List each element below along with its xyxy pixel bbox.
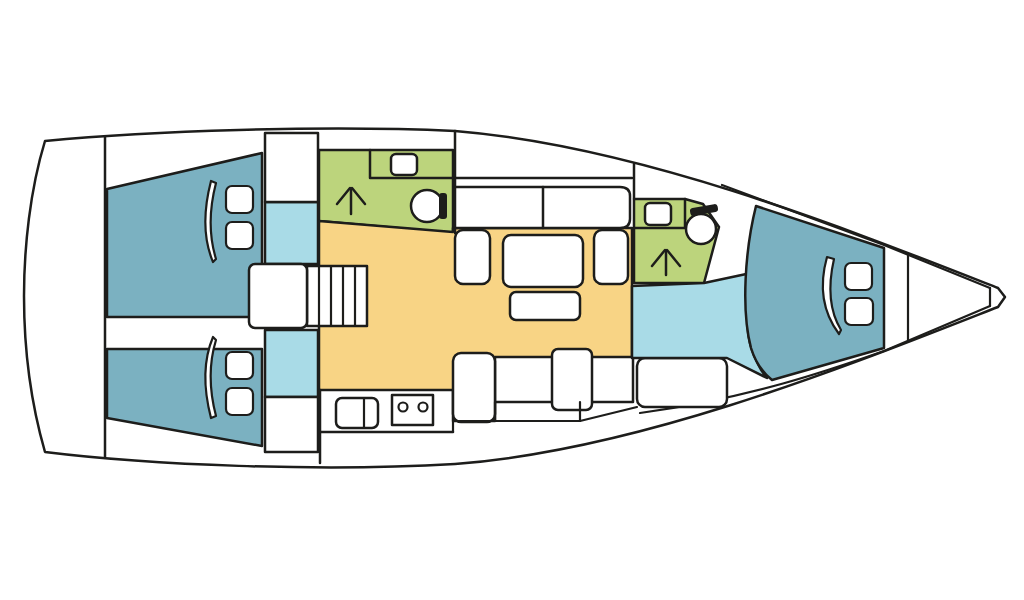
companionway-landing [249, 264, 307, 328]
floor-plan-canvas [0, 0, 1024, 600]
aft-head-toilet [411, 190, 443, 222]
pillow [226, 352, 253, 379]
forward-head-sink [645, 203, 671, 225]
salon-table [503, 235, 583, 287]
aft-head [319, 150, 453, 233]
pillow [226, 388, 253, 415]
companionway [249, 264, 367, 328]
companionway-steps [307, 266, 367, 326]
locker-aft-starboard [265, 397, 318, 452]
pillow [226, 186, 253, 213]
corridor-starboard [265, 330, 318, 397]
pillow [226, 222, 253, 249]
aft-head-sink [391, 154, 417, 175]
side-seat-left [455, 230, 490, 284]
aft-head-toilet-lid [439, 193, 447, 219]
pillow [845, 263, 872, 290]
galley-sink [336, 398, 378, 428]
chart-table [637, 358, 727, 407]
forward-cabin [745, 206, 884, 380]
chart-seat [552, 349, 592, 410]
forward-head [634, 199, 719, 283]
corridor-port [265, 202, 318, 264]
forward-head-toilet [686, 214, 716, 244]
yacht-floor-plan [0, 0, 1024, 600]
lower-seat-left [453, 353, 495, 422]
salon-bench [510, 292, 580, 320]
pillow [845, 298, 873, 325]
locker-aft-port [265, 133, 318, 202]
side-seat-right [594, 230, 628, 284]
